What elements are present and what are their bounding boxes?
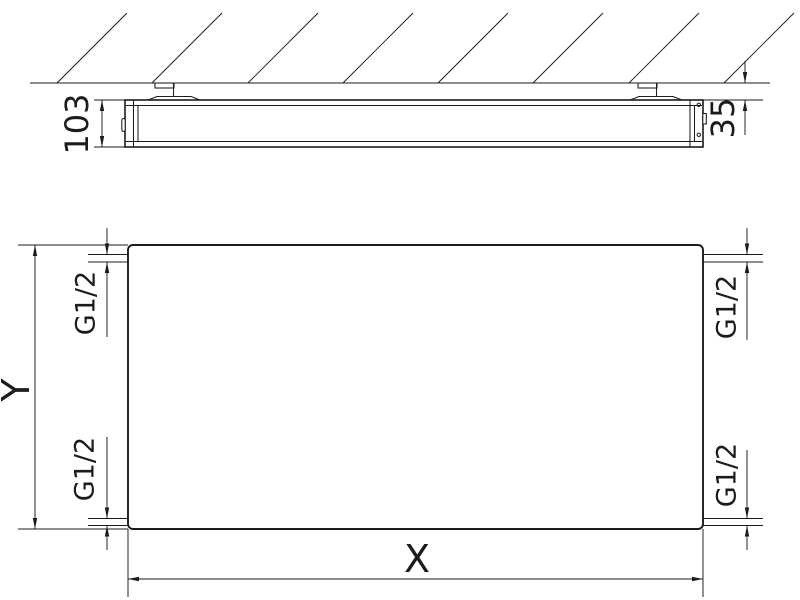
connection-label-bottom-left: G1/2 [70,437,101,501]
arrow-up-icon [745,262,749,273]
front-view: G1/2 G1/2 G1/2 G1/2 [0,228,763,597]
arrow-right-icon [692,577,703,581]
connection-dimension-top-right: G1/2 [712,228,750,340]
connection-dimension-bottom-right: G1/2 [712,443,750,550]
connection-label-top-left: G1/2 [71,271,102,335]
connection-stub-top-right [703,255,763,263]
mounting-bracket-left [146,83,202,101]
connection-stub-bottom-right [703,519,763,526]
mounting-bracket-right [628,83,684,101]
arrow-up-icon [33,245,37,256]
arrow-up-icon [743,100,747,111]
arrow-up-icon [100,100,104,111]
wall-clearance-label: 35 [704,98,742,139]
radiator-technical-drawing: 103 35 [0,0,800,600]
wall-hatching-icon [57,13,794,83]
connection-stub-top-left [88,255,128,263]
arrow-down-icon [745,244,749,255]
connection-dimension-bottom-left: G1/2 [70,437,110,550]
arrow-down-icon [105,244,109,255]
arrow-down-icon [743,72,747,83]
radiator-panel [128,245,703,529]
arrow-up-icon [745,526,749,537]
width-dimension: X [128,529,703,597]
arrow-up-icon [105,262,109,273]
connection-label-top-right: G1/2 [712,275,743,339]
depth-dimension: 103 [58,93,125,154]
radiator-body-top-view [122,100,707,147]
arrow-down-icon [105,508,109,519]
arrow-left-icon [128,577,139,581]
arrow-down-icon [33,518,37,529]
connection-dimension-top-left: G1/2 [71,228,110,337]
wall-clearance-dimension: 35 [703,61,763,138]
arrow-down-icon [100,136,104,147]
height-dimension: Y [0,245,38,529]
arrow-down-icon [745,508,749,519]
connection-label-bottom-right: G1/2 [712,443,743,507]
connection-stub-bottom-left [88,519,128,526]
height-label: Y [0,378,38,403]
drawing-canvas: 103 35 [0,0,800,600]
top-view: 103 35 [30,13,794,155]
depth-dimension-label: 103 [58,93,96,154]
arrow-up-icon [105,526,109,537]
width-label: X [404,537,430,581]
